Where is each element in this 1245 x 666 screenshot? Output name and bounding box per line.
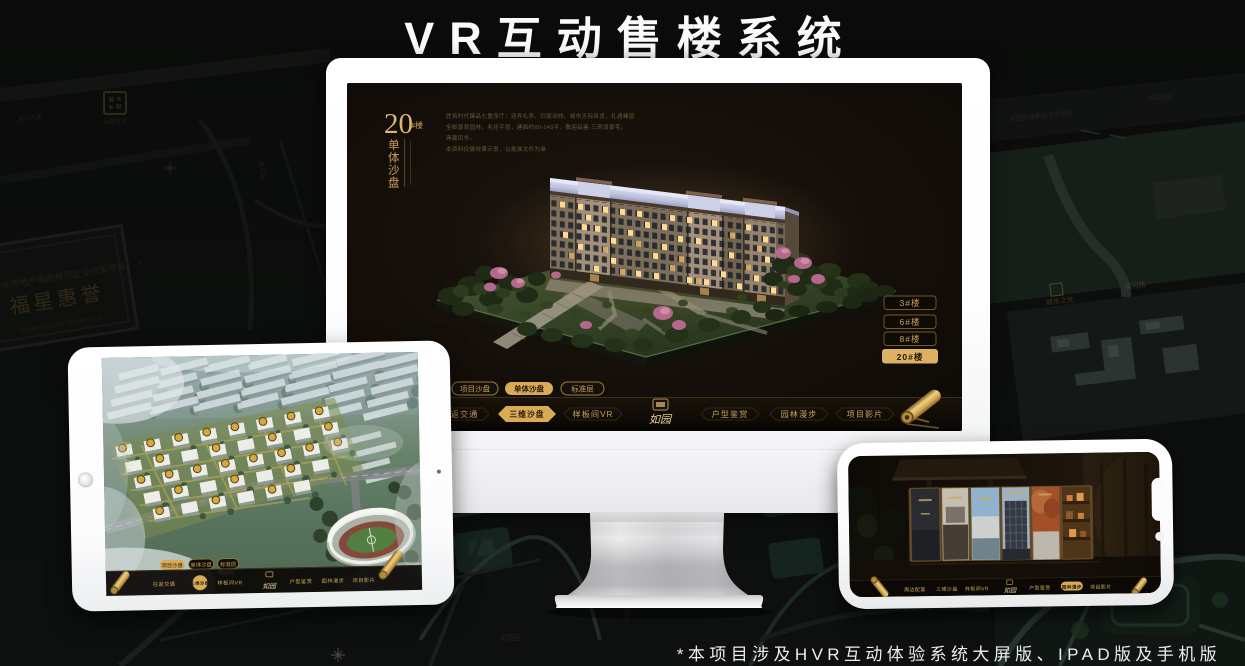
svg-text:标准层: 标准层: [571, 384, 594, 394]
svg-text:项目影片: 项目影片: [1090, 584, 1112, 591]
svg-text:区: 区: [123, 451, 130, 459]
svg-text:本资料仅做效果示意，以批准文件为准: 本资料仅做效果示意，以批准文件为准: [446, 145, 546, 153]
svg-text:福星惠誉: 福星惠誉: [103, 118, 127, 126]
svg-text:项目沙盘: 项目沙盘: [460, 384, 490, 394]
svg-text:8#楼: 8#楼: [900, 334, 921, 344]
svg-text:#楼: #楼: [411, 120, 423, 130]
svg-text:项目影片: 项目影片: [847, 409, 884, 419]
svg-text:单: 单: [388, 139, 400, 152]
svg-text:园林漫步: 园林漫步: [781, 409, 818, 419]
svg-text:体: 体: [388, 151, 400, 165]
svg-text:全龄景观园林，毛坯平层，建面约90-140平，敬迎品鉴·三房: 全龄景观园林，毛坯平层，建面约90-140平，敬迎品鉴·三房阔景宅。: [446, 123, 627, 131]
svg-text:匠筑时代臻品七重序厅：迎宾礼序、归家动线、城市天际纵览，礼遇: 匠筑时代臻品七重序厅：迎宾礼序、归家动线、城市天际纵览，礼遇峰层: [446, 112, 635, 120]
svg-text:样板间VR: 样板间VR: [573, 409, 614, 419]
svg-text:示范区: 示范区: [500, 633, 521, 642]
svg-text:周边配套: 周边配套: [904, 586, 926, 593]
svg-text:盘: 盘: [388, 176, 400, 190]
svg-text:如园: 如园: [1004, 586, 1017, 594]
svg-text:沙: 沙: [388, 164, 400, 177]
svg-text:6#楼: 6#楼: [900, 317, 921, 327]
svg-text:园: 园: [123, 442, 130, 450]
svg-text:三维沙盘: 三维沙盘: [509, 409, 544, 419]
svg-text:3#楼: 3#楼: [900, 298, 921, 308]
svg-text:三: 三: [124, 459, 131, 467]
svg-text:单体沙盘: 单体沙盘: [514, 384, 544, 394]
svg-text:›: ›: [138, 255, 142, 269]
svg-text:期: 期: [124, 468, 131, 476]
svg-text:样板间VR: 样板间VR: [965, 585, 989, 592]
svg-text:三维沙盘: 三维沙盘: [936, 586, 958, 593]
svg-text:如园: 如园: [649, 413, 673, 426]
svg-text:20: 20: [384, 108, 413, 140]
svg-text:户型鉴赏: 户型鉴赏: [712, 409, 749, 419]
svg-text:户型鉴赏: 户型鉴赏: [1029, 584, 1051, 591]
svg-text:20#楼: 20#楼: [897, 352, 924, 362]
svg-text:典藏风华。: 典藏风华。: [446, 134, 475, 142]
svg-text:如园: 如园: [262, 582, 277, 590]
